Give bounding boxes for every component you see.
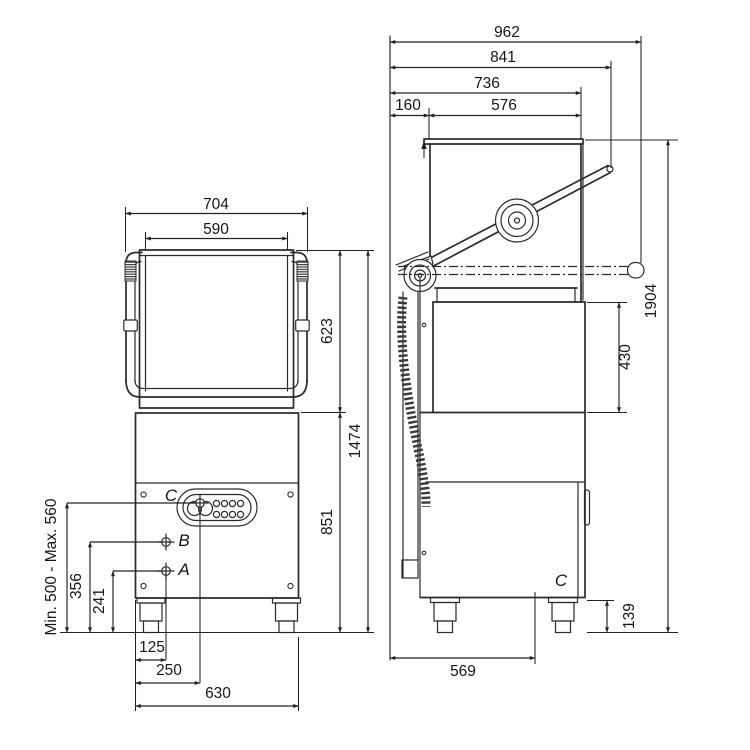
side-feet <box>431 598 578 633</box>
screw-icon <box>288 492 293 497</box>
handle-knurl-grips <box>124 261 309 331</box>
svg-text:630: 630 <box>205 685 231 702</box>
hood-dishwasher-dimension-drawing: C B A 704 590 <box>0 0 750 750</box>
svg-text:704: 704 <box>203 196 229 213</box>
front-hood-handle <box>124 253 309 398</box>
svg-text:356: 356 <box>68 573 85 599</box>
screw-icon <box>141 492 146 497</box>
svg-text:250: 250 <box>156 662 182 679</box>
dim-base-height-851: 851 <box>319 413 340 633</box>
svg-text:841: 841 <box>490 49 516 66</box>
svg-text:139: 139 <box>621 603 638 629</box>
svg-text:962: 962 <box>494 24 520 41</box>
svg-text:1474: 1474 <box>347 423 364 458</box>
screw-icon <box>141 583 146 588</box>
label-a-front: A <box>177 560 189 579</box>
dim-hood-depth-576: 576 <box>429 97 581 116</box>
svg-text:851: 851 <box>319 509 336 535</box>
dim-opening-height-430: 430 <box>587 303 634 413</box>
control-panel <box>177 489 257 526</box>
svg-text:736: 736 <box>474 75 500 92</box>
svg-text:590: 590 <box>203 221 229 238</box>
dim-c-offset-250: 250 <box>136 508 201 684</box>
hinge-pivot-icon <box>396 252 436 292</box>
handle-end-cap <box>628 263 645 279</box>
drain-hose <box>402 297 426 507</box>
dim-connection-range: Min. 500 - Max. 560 <box>43 498 196 635</box>
label-c-front: C <box>165 486 178 505</box>
side-view: C 962 841 736 16 <box>390 24 678 680</box>
label-c-side: C <box>555 571 568 590</box>
dim-hood-width-590: 590 <box>146 221 288 250</box>
dim-foot-inset-125: 125 <box>136 576 167 712</box>
svg-text:569: 569 <box>450 663 476 680</box>
svg-text:125: 125 <box>139 639 165 656</box>
dim-a-height-241: 241 <box>91 571 162 633</box>
svg-text:1904: 1904 <box>643 283 660 318</box>
dim-foot-height-139: 139 <box>587 601 638 633</box>
svg-text:623: 623 <box>319 318 336 344</box>
front-hood <box>140 250 294 408</box>
technical-drawing-page: C B A 704 590 <box>0 0 750 750</box>
screw-icon <box>288 583 293 588</box>
dim-total-height-1474: 1474 <box>347 251 368 633</box>
arm-end-pivot-icon <box>607 166 613 172</box>
svg-text:Min. 500 - Max. 560: Min. 500 - Max. 560 <box>43 498 60 635</box>
svg-text:430: 430 <box>617 344 634 370</box>
label-b-front: B <box>178 531 189 550</box>
front-view: C B A 704 590 <box>43 196 374 711</box>
svg-text:160: 160 <box>395 97 421 114</box>
dim-drain-depth-569: 569 <box>390 592 535 680</box>
dim-b-height-356: 356 <box>68 542 162 633</box>
dim-total-height-open-1904: 1904 <box>585 140 678 633</box>
arm-center-pivot-icon <box>496 199 539 242</box>
side-base-cabinet: C <box>420 302 590 598</box>
dim-back-clearance-160: 160 <box>390 97 429 139</box>
svg-text:241: 241 <box>91 588 108 614</box>
front-feet <box>137 598 301 633</box>
svg-text:576: 576 <box>491 97 517 114</box>
